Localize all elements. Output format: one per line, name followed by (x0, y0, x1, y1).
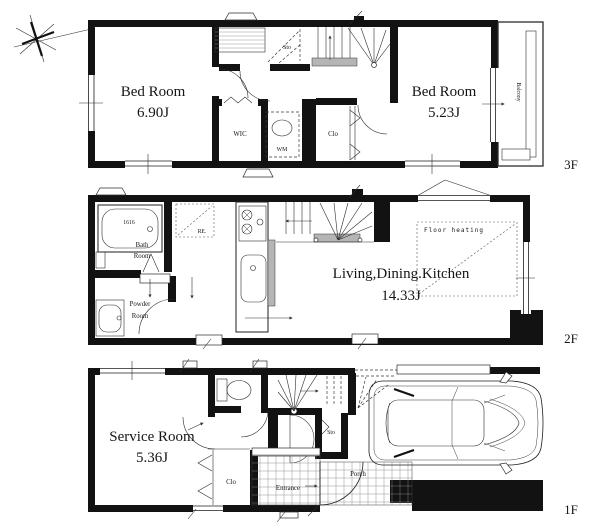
3f-clo-label: Clo (328, 131, 338, 138)
3f-bedroom1-size: 6.90J (137, 105, 169, 121)
2f-bath-label-2: Room (134, 253, 151, 260)
1f-service-name: Service Room (109, 429, 195, 445)
3f-sto-label: Sto (283, 45, 291, 51)
1f-clo-label: Clo (226, 479, 236, 486)
2f-powder-label-2: Room (132, 313, 149, 320)
3f-bedroom2-size: 5.23J (428, 105, 460, 121)
2f-floor-label: 2F (564, 331, 578, 346)
1f-sto-label: Sto (327, 430, 335, 436)
2f-floor-heating-label: Floor heating (424, 227, 484, 234)
floor-3f: Bed Room 6.90J Bed Room 5.23J WIC WM Sto… (79, 11, 578, 177)
3f-wm-label: WM (277, 147, 288, 153)
3f-wic-label: WIC (233, 131, 247, 138)
1f-service-size: 5.36J (136, 450, 168, 466)
1f-entrance-label: Entrance (276, 485, 300, 492)
2f-ldk-name: Living,Dining.Kitchen (333, 266, 470, 282)
1f-stairs (278, 375, 394, 414)
floor-2f: Living,Dining.Kitchen 14.33J Bath Room 1… (88, 180, 578, 349)
floor-1f: Service Room 5.36J Clo Sto Entrance Porc… (88, 359, 578, 522)
1f-toilet (217, 379, 251, 401)
1f-porch-label: Porch (350, 471, 366, 478)
1f-car (369, 372, 543, 474)
2f-fridge-label: RE. (198, 229, 207, 235)
3f-floor-label: 3F (564, 157, 578, 172)
3f-balcony-label: Balcony (515, 82, 521, 101)
3f-bedroom2-name: Bed Room (412, 84, 477, 100)
2f-bath-label-1: Bath (136, 242, 149, 249)
3f-bedroom1-name: Bed Room (121, 84, 186, 100)
floorplan-canvas: Bed Room 6.90J Bed Room 5.23J WIC WM Sto… (0, 0, 600, 532)
2f-ldk-size: 14.33J (381, 288, 421, 304)
1f-floor-label: 1F (564, 502, 578, 517)
2f-tub-size: 1616 (123, 220, 135, 226)
2f-powder-label-1: Powder (130, 301, 152, 308)
